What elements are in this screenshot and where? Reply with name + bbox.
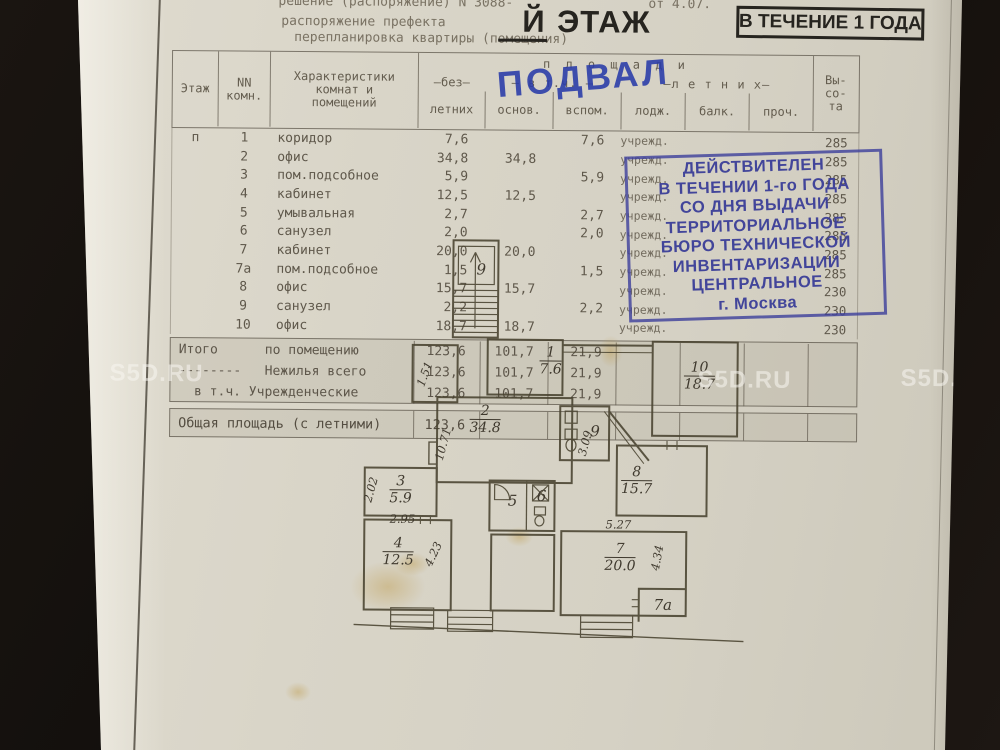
plan-label-5: 5	[508, 492, 518, 510]
cell-aux: 2,7	[552, 208, 620, 224]
plan-label-7а: 7а	[653, 596, 672, 614]
stamp-line: ЦЕНТРАЛЬНОЕ	[691, 273, 823, 297]
cell-aux: 7,6	[552, 133, 620, 149]
plan-label-2: 234.8	[469, 404, 500, 435]
photo-scene: решение (распоряжение) N 3088- от 4.07. …	[0, 0, 1000, 750]
cell-height: 285	[812, 135, 860, 150]
cell-num: 10	[217, 317, 269, 332]
room-area: 15.7	[621, 481, 652, 496]
cell-num: 5	[218, 205, 270, 220]
cell-num: 7	[217, 242, 269, 257]
plan-label-2.95: 2.95	[390, 512, 416, 526]
cell-num: 2	[218, 149, 270, 164]
plan-label-9: 9	[590, 422, 600, 440]
cell-num: 6	[218, 224, 270, 239]
col-other: проч.	[748, 94, 812, 132]
room-area: 5.9	[389, 490, 411, 505]
cell-name: умывальная	[270, 205, 418, 221]
cell-num: 1	[218, 130, 270, 145]
cell-height: 230	[811, 322, 859, 337]
cell-aux	[552, 196, 620, 197]
room-number: 8	[621, 465, 652, 481]
validity-stamp: ДЕЙСТВИТЕЛЕНВ ТЕЧЕНИИ 1-го ГОДАСО ДНЯ ВЫ…	[624, 149, 887, 323]
cell-total: 2,7	[418, 207, 484, 223]
cell-main	[484, 140, 552, 141]
stamp-line: г. Москва	[718, 293, 798, 315]
summary-value	[808, 344, 856, 365]
col-characteristics: Характеристики комнат и помещений	[270, 52, 419, 128]
room-area: 20.0	[604, 558, 635, 573]
validity-period-box: В ТЕЧЕНИЕ 1 ГОДА	[736, 6, 924, 41]
watermark: S5D.RU	[697, 366, 791, 395]
cell-name: коридор	[270, 131, 418, 147]
watermark: S5D.RU	[900, 365, 994, 394]
doc-header-line1-right: от 4.07.	[648, 0, 711, 12]
cell-num: 3	[218, 168, 270, 183]
room-number: 3	[389, 474, 411, 490]
summary-value	[807, 386, 855, 407]
room-area: 34.8	[469, 420, 500, 435]
room-number: 4	[383, 536, 414, 552]
paper-stain	[285, 682, 311, 702]
room-number: 1	[540, 345, 562, 361]
document-paper: решение (распоряжение) N 3088- от 4.07. …	[0, 0, 1000, 750]
doc-header-line1: решение (распоряжение) N 3088-	[278, 0, 513, 11]
cell-aux: 5,9	[552, 170, 620, 186]
cell-use: учрежд.	[620, 134, 684, 149]
col-floor: Этаж	[172, 51, 219, 126]
col-height: Вы- со- та	[812, 56, 858, 131]
cell-total: 5,9	[418, 169, 484, 185]
room-number: 2	[470, 404, 501, 420]
cell-balc	[684, 141, 748, 142]
cell-num: 9	[217, 298, 269, 313]
plan-label-9: 9	[477, 260, 487, 278]
cell-name: пом.подсобное	[270, 168, 418, 184]
cell-aux	[552, 159, 620, 160]
cell-main: 12,5	[484, 188, 552, 204]
cell-total: 34,8	[418, 150, 484, 166]
cell-total: 12,5	[418, 188, 484, 204]
cell-name: офис	[270, 149, 418, 165]
plan-label-6: 6	[537, 487, 547, 505]
doc-header-line2: распоряжение префекта	[281, 14, 445, 30]
cell-floor: п	[172, 130, 218, 145]
floor-title-blank: Й	[498, 4, 548, 42]
area-table: Этаж NN комн. Характеристики комнат и по…	[172, 50, 860, 55]
plan-label-5.27: 5.27	[606, 517, 632, 531]
cell-num: 8	[217, 280, 269, 295]
summary-value	[807, 365, 855, 386]
floor-title: Й ЭТАЖ	[498, 4, 651, 41]
cell-main: 34,8	[484, 151, 552, 167]
room-area: 12.5	[382, 552, 413, 567]
col-without-summer-2: летних	[418, 91, 484, 129]
cell-other	[748, 142, 812, 143]
watermark: S5D.RU	[109, 360, 203, 389]
cell-num: 7а	[217, 261, 269, 276]
plan-label-7: 720.0	[604, 542, 635, 573]
plan-label-4: 412.5	[382, 536, 413, 567]
room-area: 7.6	[539, 361, 561, 376]
cell-main	[484, 177, 552, 178]
cell-main	[484, 215, 552, 216]
floor-title-word: ЭТАЖ	[547, 4, 650, 40]
col-loggia: лодж.	[620, 93, 684, 131]
plan-label-1: 17.6	[539, 345, 562, 376]
col-without-summer: –без–	[419, 73, 485, 92]
cell-total: 7,6	[418, 132, 484, 148]
plan-label-8: 815.7	[621, 465, 652, 496]
room-number: 7	[605, 542, 636, 558]
document-content: решение (распоряжение) N 3088- от 4.07. …	[0, 0, 1000, 750]
col-balcony: балк.	[684, 93, 748, 131]
plan-label-3: 35.9	[389, 474, 412, 505]
cell-num: 4	[218, 186, 270, 201]
col-room-no: NN комн.	[218, 51, 271, 126]
cell-name: кабинет	[270, 187, 418, 203]
